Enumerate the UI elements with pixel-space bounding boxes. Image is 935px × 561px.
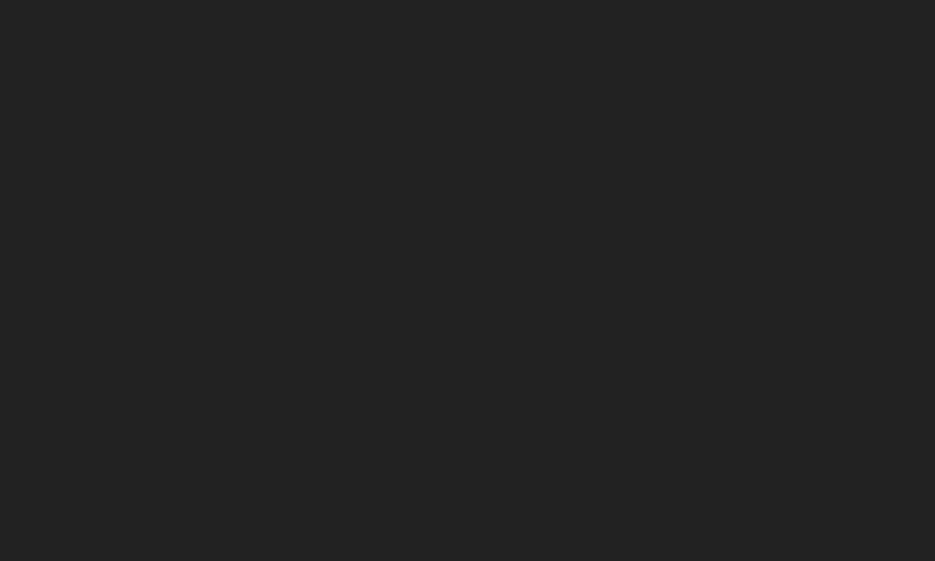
blank-screen <box>0 0 935 561</box>
